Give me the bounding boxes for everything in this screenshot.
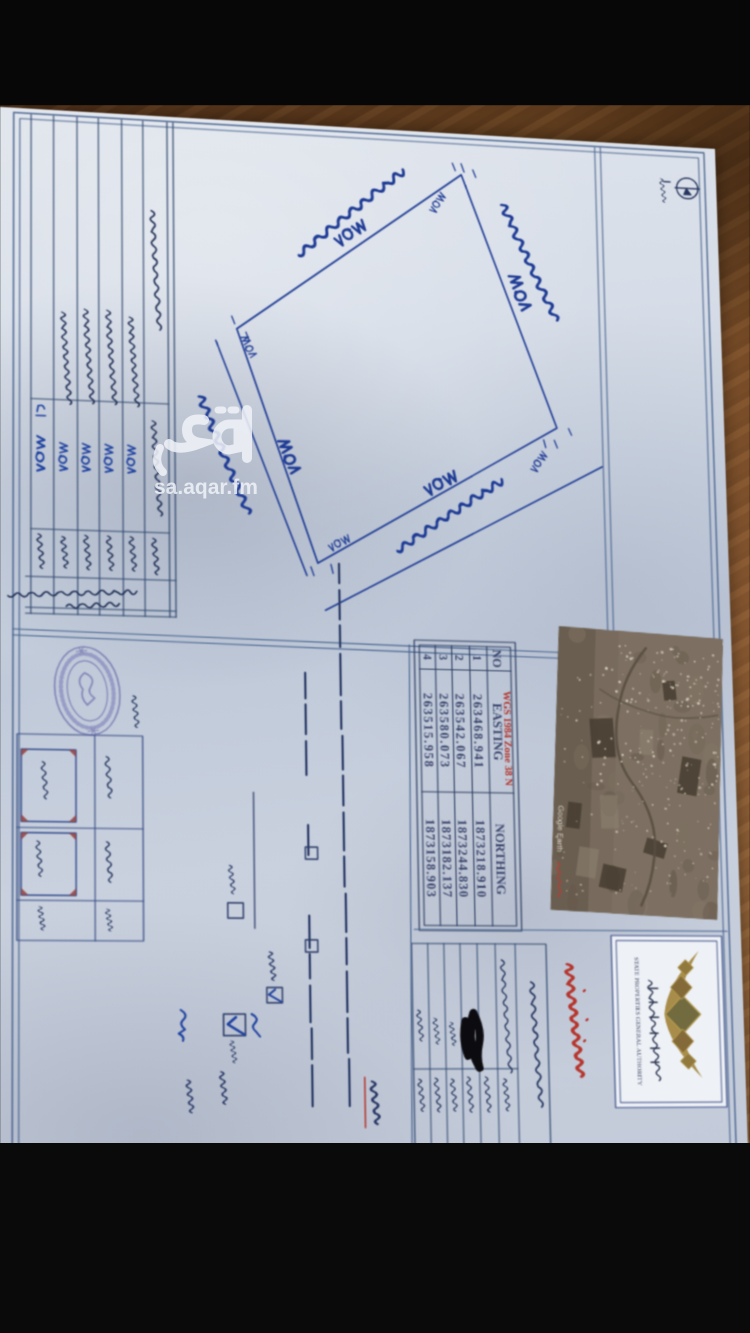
svg-text:2: 2	[452, 655, 466, 661]
svg-text:1873182.137: 1873182.137	[439, 819, 455, 898]
svg-text:3: 3	[436, 654, 450, 660]
svg-text:NORTHING: NORTHING	[492, 824, 508, 895]
svg-text:Google Earth: Google Earth	[555, 805, 565, 852]
svg-text:1873244.830: 1873244.830	[455, 819, 471, 898]
svg-text:263468.941: 263468.941	[470, 694, 486, 770]
svg-text:1873218.910: 1873218.910	[473, 820, 489, 899]
svg-text:263542.067: 263542.067	[452, 693, 468, 769]
svg-text:4: 4	[420, 654, 434, 660]
svg-text:1: 1	[470, 655, 484, 661]
svg-text:NO: NO	[490, 649, 504, 668]
svg-text:sa.aqar.fm: sa.aqar.fm	[154, 476, 258, 499]
svg-text:1873158.903: 1873158.903	[423, 819, 439, 898]
svg-text:263515.958: 263515.958	[421, 693, 436, 769]
svg-text:263580.073: 263580.073	[437, 693, 453, 769]
svg-text:EASTING: EASTING	[490, 703, 505, 761]
